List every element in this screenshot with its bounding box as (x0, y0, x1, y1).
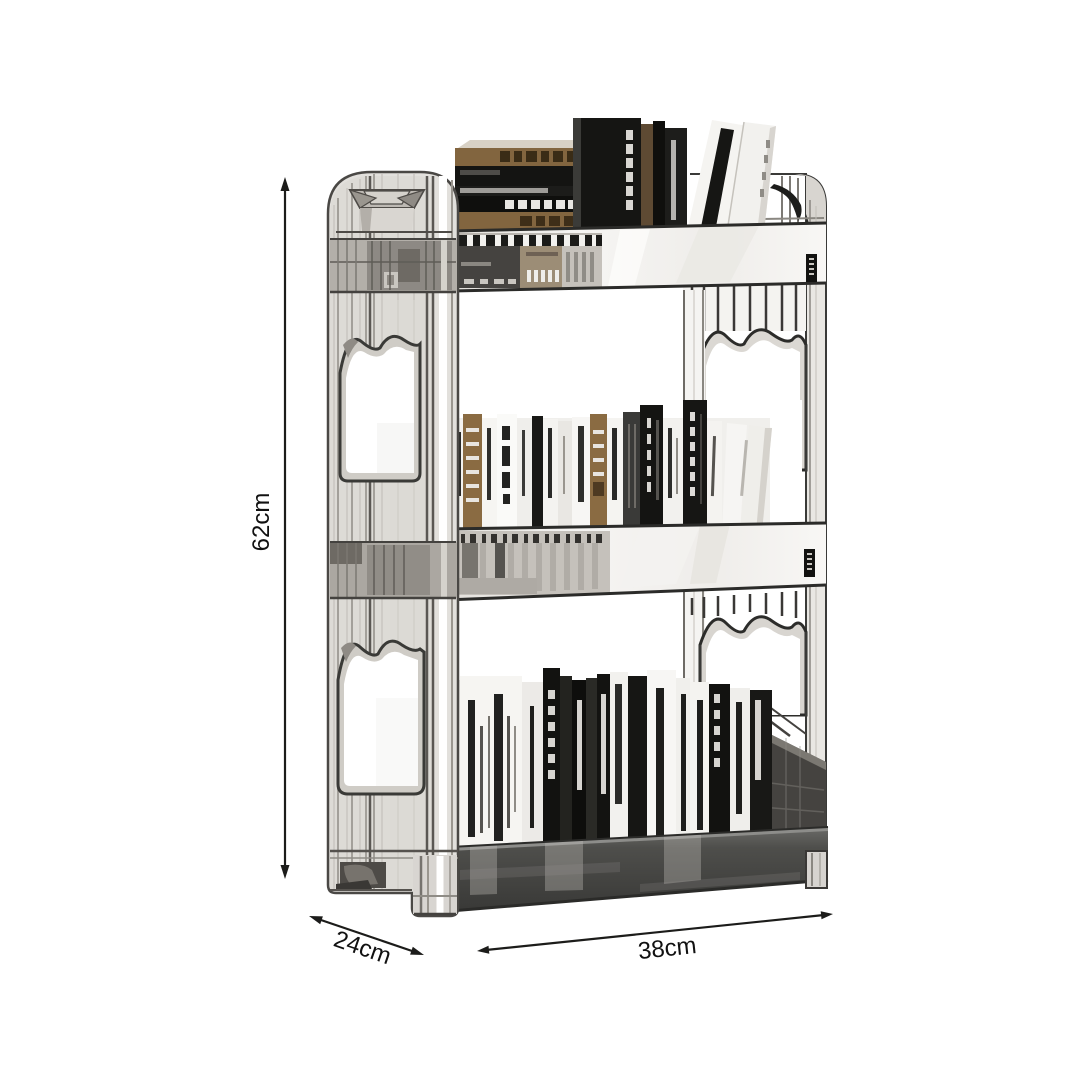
svg-text:62cm: 62cm (248, 493, 275, 552)
